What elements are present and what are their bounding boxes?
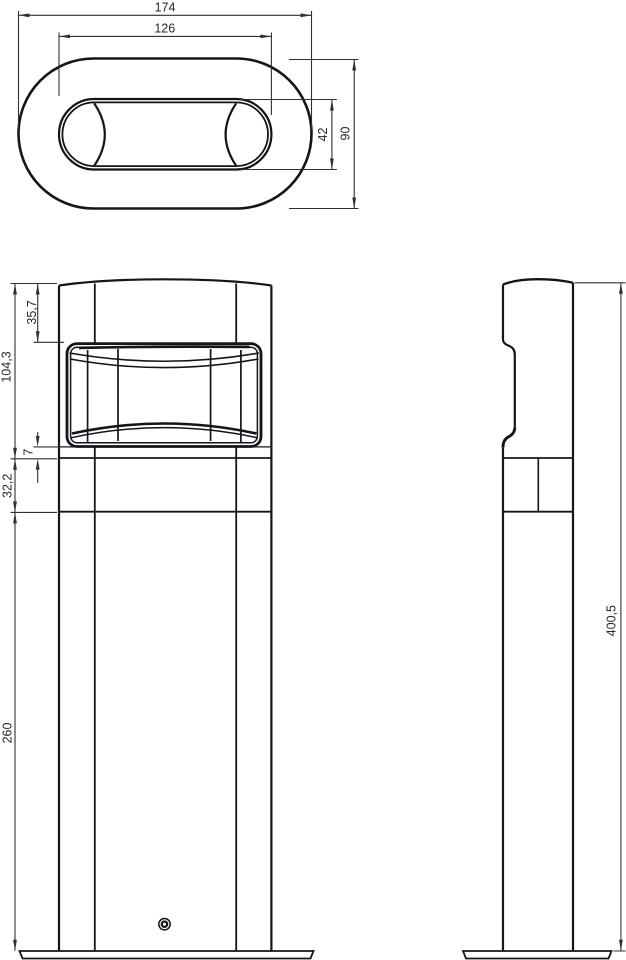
- svg-text:42: 42: [316, 128, 330, 142]
- svg-text:400,5: 400,5: [605, 605, 619, 636]
- svg-text:174: 174: [155, 0, 176, 14]
- svg-text:7: 7: [22, 449, 36, 456]
- svg-text:260: 260: [1, 723, 15, 744]
- svg-text:126: 126: [154, 21, 175, 35]
- svg-text:90: 90: [339, 127, 353, 141]
- svg-text:32,2: 32,2: [1, 474, 15, 498]
- svg-text:104,3: 104,3: [0, 351, 14, 382]
- svg-text:35,7: 35,7: [25, 300, 39, 324]
